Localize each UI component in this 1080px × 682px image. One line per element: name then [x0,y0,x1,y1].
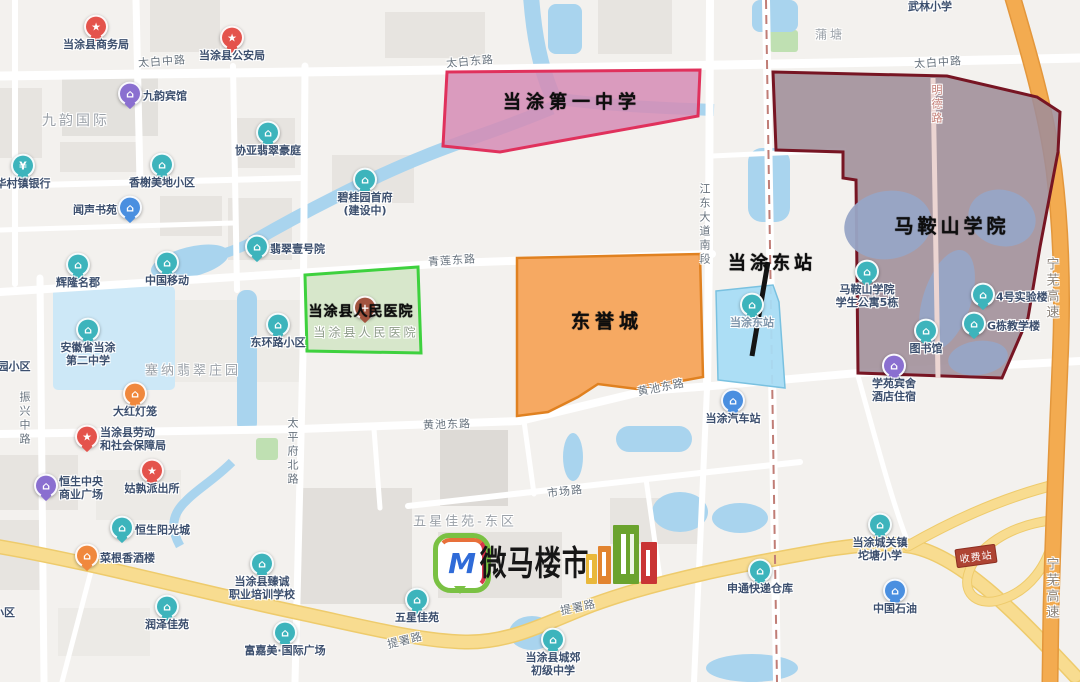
poi-label-line: 翡翠壹号院 [270,243,325,256]
poi-label-line: 当涂县商务局 [63,38,129,51]
poi-pin-icon: ⌂ [74,258,82,271]
annotation-title: 东誉城 [571,307,643,334]
poi-label-line: 第二中学 [61,354,116,367]
poi-label[interactable]: 菜根香酒楼 [100,552,155,565]
road-label: 宁芜高速 [1042,557,1061,621]
poi-pin[interactable]: ⌂ [75,544,99,568]
poi-pin[interactable]: ⌂ [250,552,274,576]
poi-label[interactable]: 协亚翡翠豪庭 [235,144,301,157]
poi-pin[interactable]: ⌂ [118,196,142,220]
poi-pin-icon: ⌂ [163,600,171,613]
poi-label-line: 恒生中央 [59,475,103,488]
poi-pin-icon: ⌂ [83,549,91,562]
poi-pin-icon: ⌂ [970,317,978,330]
poi-pin[interactable]: ⌂ [76,318,100,342]
poi-label-line: 九韵宾馆 [143,90,187,103]
poi-label[interactable]: 翡翠壹号院 [270,243,325,256]
poi-label[interactable]: 图书馆 [910,342,943,355]
road-label: 太白中路 [138,51,187,70]
poi-label[interactable]: 马鞍山学院学生公寓5栋 [836,283,899,309]
annotation-title: 当涂县人民医院 [309,301,414,321]
poi-pin[interactable]: ⌂ [66,253,90,277]
poi-pin-icon: ⌂ [890,359,898,372]
poi-label[interactable]: 闻声书苑 [73,204,117,217]
poi-pin-icon: ⌂ [863,265,871,278]
poi-label[interactable]: G栋教学楼 [987,320,1040,333]
poi-label-line: 当涂县臻诚 [229,575,295,588]
toll-station-badge: 收费站 [954,544,997,569]
poi-pin[interactable]: ⌂ [155,595,179,619]
poi-label[interactable]: 当涂县商务局 [63,38,129,51]
poi-pin[interactable]: ⌂ [962,312,986,336]
poi-label-line: 碧桂园首府 [338,191,393,204]
poi-label-line: 中国石油 [873,602,917,615]
road-label: 提署路 [386,628,425,652]
poi-pin-icon: ⌂ [126,87,134,100]
road-label: 振兴中路 [16,391,32,447]
poi-label-line: 酒店住宿 [872,390,916,403]
poi-label[interactable]: 恒生中央商业广场 [59,475,103,501]
poi-pin-icon: ★ [82,430,92,443]
poi-pin[interactable]: ⌂ [118,82,142,106]
poi-label-line: 东环路小区 [251,336,306,349]
poi-pin[interactable]: ⌂ [34,474,58,498]
poi-label[interactable]: 申通快递仓库 [727,582,793,595]
poi-label-line: 学生公寓5栋 [836,296,899,309]
brand-text: 微马楼市 [480,536,589,585]
poi-label[interactable]: 香榭美地小区 [129,176,195,189]
poi-pin-icon: ⌂ [258,557,266,570]
poi-label-line: 润泽佳苑 [145,618,189,631]
poi-pin-icon: ⌂ [413,593,421,606]
poi-label[interactable]: 当涂县臻诚职业培训学校 [229,575,295,601]
annotation-title: 当涂第一中学 [503,88,641,114]
poi-label[interactable]: 润泽佳苑 [145,618,189,631]
poi-label[interactable]: 安徽省当涂第二中学 [61,341,116,367]
poi-label-line: 小区 [0,606,15,619]
poi-pin-icon: ⌂ [549,633,557,646]
poi-label[interactable]: 五星佳苑 [395,611,439,624]
poi-pin[interactable]: ¥ [11,154,35,178]
poi-label-line: 当涂城关镇 [853,536,908,549]
poi-label-line: 当涂县劳动 [100,426,166,439]
poi-pin-icon: ⌂ [876,518,884,531]
poi-pin[interactable]: ⌂ [541,628,565,652]
poi-label-line: 辉隆名郡 [56,276,100,289]
poi-label[interactable]: 当涂县城郊初级中学 [526,651,581,677]
poi-label[interactable]: 东环路小区 [251,336,306,349]
poi-label-line: 大红灯笼 [113,405,157,418]
poi-label[interactable]: 辉隆名郡 [56,276,100,289]
area-label: 当涂县人民医院 [313,324,418,341]
poi-pin[interactable]: ⌂ [123,382,147,406]
poi-label[interactable]: 学苑宾舍酒店住宿 [872,377,916,403]
poi-pin-icon: ⌂ [756,564,764,577]
poi-label-line: 当涂县城郊 [526,651,581,664]
annotation-title: 当涂东站 [728,249,816,275]
poi-label-line: 香榭美地小区 [129,176,195,189]
road-label: 江东大道南段 [696,183,712,267]
poi-label-line: 华村镇银行 [0,177,51,190]
poi-label-line: 闻声书苑 [73,204,117,217]
poi-pin[interactable]: ⌂ [855,260,879,284]
poi-label-line: G栋教学楼 [987,320,1040,333]
poi-pin[interactable]: ⌂ [740,293,764,317]
road-label: 市场路 [546,481,584,501]
poi-label[interactable]: 当涂县劳动和社会保障局 [100,426,166,452]
map-canvas[interactable]: 太白中路太白东路太白中路青莲东路黄池东路黄池东路市场路提署路提署路振兴中路太平府… [0,0,1080,682]
poi-pin[interactable]: ⌂ [155,251,179,275]
poi-pin[interactable]: ⌂ [882,354,906,378]
poi-label-line: 中国移动 [145,274,189,287]
poi-pin[interactable]: ⌂ [245,235,269,259]
poi-label[interactable]: 大红灯笼 [113,405,157,418]
poi-label-line: 当涂县公安局 [199,49,265,62]
poi-label[interactable]: 姑孰派出所 [125,482,180,495]
poi-pin-icon: ⌂ [158,158,166,171]
poi-pin-icon: ⌂ [729,394,737,407]
poi-pin[interactable]: ⌂ [868,513,892,537]
poi-label-line: 职业培训学校 [229,588,295,601]
poi-pin-icon: ⌂ [253,240,261,253]
poi-pin-icon: ⌂ [126,201,134,214]
road-label: 宁芜高速 [1042,257,1061,321]
poi-label-line: 当涂东站 [730,316,774,329]
poi-pin[interactable]: ★ [140,459,164,483]
poi-label-line: 园小区 [0,360,31,373]
poi-label-line: 武林小学 [908,0,952,13]
poi-label-line: 当涂汽车站 [706,412,761,425]
poi-label-line: 姑孰派出所 [125,482,180,495]
poi-pin-icon: ¥ [19,159,27,172]
poi-label-line: 坨塘小学 [853,549,908,562]
poi-label-line: 马鞍山学院 [836,283,899,296]
road-label: 黄池东路 [636,375,686,400]
poi-label[interactable]: 富嘉美·国际广场 [244,644,325,657]
poi-pin-icon: ⌂ [748,298,756,311]
poi-pin[interactable]: ⌂ [110,516,134,540]
poi-label-line: 协亚翡翠豪庭 [235,144,301,157]
area-label: 九韵国际 [42,110,110,130]
poi-pin-icon: ⌂ [922,324,930,337]
poi-label-line: 富嘉美·国际广场 [244,644,325,657]
poi-pin-icon: ⌂ [274,318,282,331]
poi-pin[interactable]: ⌂ [256,121,280,145]
poi-label-line: 商业广场 [59,488,103,501]
poi-pin[interactable]: ★ [220,26,244,50]
poi-label-line: (建设中) [338,204,393,217]
poi-pin[interactable]: ⌂ [266,313,290,337]
poi-label-line: 申通快递仓库 [727,582,793,595]
area-label: 蒲塘 [815,26,845,43]
poi-label[interactable]: 华村镇银行 [0,177,51,190]
road-label: 明德路 [928,84,944,126]
poi-label[interactable]: 九韵宾馆 [143,90,187,103]
brand-monogram: M [438,538,486,588]
poi-label-line: 菜根香酒楼 [100,552,155,565]
poi-pin-icon: ⌂ [264,126,272,139]
road-label: 太平府北路 [284,417,300,487]
poi-pin[interactable]: ⌂ [748,559,772,583]
road-label: 青莲东路 [428,250,477,269]
poi-label-line: 初级中学 [526,664,581,677]
buildings-icon [583,522,659,586]
poi-label[interactable]: 武林小学 [908,0,952,13]
poi-pin-icon: ⌂ [979,288,987,301]
poi-pin-icon: ⌂ [163,256,171,269]
poi-label-line: 和社会保障局 [100,439,166,452]
poi-label-line: 五星佳苑 [395,611,439,624]
poi-pin[interactable]: ⌂ [353,168,377,192]
poi-pin-icon: ⌂ [281,626,289,639]
road-label: 太白中路 [914,52,963,71]
poi-label[interactable]: 碧桂园首府(建设中) [338,191,393,217]
poi-pin[interactable]: ⌂ [914,319,938,343]
poi-label[interactable]: 当涂县公安局 [199,49,265,62]
poi-label[interactable]: 小区 [0,606,15,619]
poi-pin[interactable]: ★ [84,15,108,39]
poi-label-line: 图书馆 [910,342,943,355]
poi-pin-icon: ⌂ [131,387,139,400]
poi-pin[interactable]: ★ [75,425,99,449]
poi-pin-icon: ★ [91,20,101,33]
poi-pin[interactable]: ⌂ [971,283,995,307]
poi-label[interactable]: 恒生阳光城 [135,524,190,537]
poi-label[interactable]: 4号实验楼 [996,291,1048,304]
poi-pin[interactable]: ⌂ [405,588,429,612]
poi-label[interactable]: 中国石油 [873,602,917,615]
poi-pin-icon: ⌂ [84,323,92,336]
poi-pin-icon: ★ [227,31,237,44]
poi-pin[interactable]: ⌂ [273,621,297,645]
road-label: 太白东路 [445,51,494,71]
poi-label[interactable]: 当涂汽车站 [706,412,761,425]
poi-pin-icon: ⌂ [118,521,126,534]
poi-pin-icon: ⌂ [361,173,369,186]
poi-label[interactable]: 中国移动 [145,274,189,287]
road-label: 黄池东路 [423,415,472,433]
poi-pin[interactable]: ⌂ [883,579,907,603]
poi-pin-icon: ★ [147,464,157,477]
poi-label[interactable]: 当涂东站 [730,316,774,329]
poi-pin[interactable]: ⌂ [721,389,745,413]
poi-pin-icon: ⌂ [891,584,899,597]
poi-label-line: 4号实验楼 [996,291,1048,304]
poi-pin-icon: ⌂ [42,479,50,492]
watermark-logo: M 微马楼市 [430,522,660,602]
poi-label[interactable]: 园小区 [0,360,31,373]
annotation-title: 马鞍山学院 [894,212,1009,239]
poi-label-line: 安徽省当涂 [61,341,116,354]
area-label: 塞纳翡翠庄园 [145,360,241,379]
poi-pin[interactable]: ⌂ [150,153,174,177]
poi-label[interactable]: 当涂城关镇坨塘小学 [853,536,908,562]
poi-label-line: 恒生阳光城 [135,524,190,537]
poi-label-line: 学苑宾舍 [872,377,916,390]
